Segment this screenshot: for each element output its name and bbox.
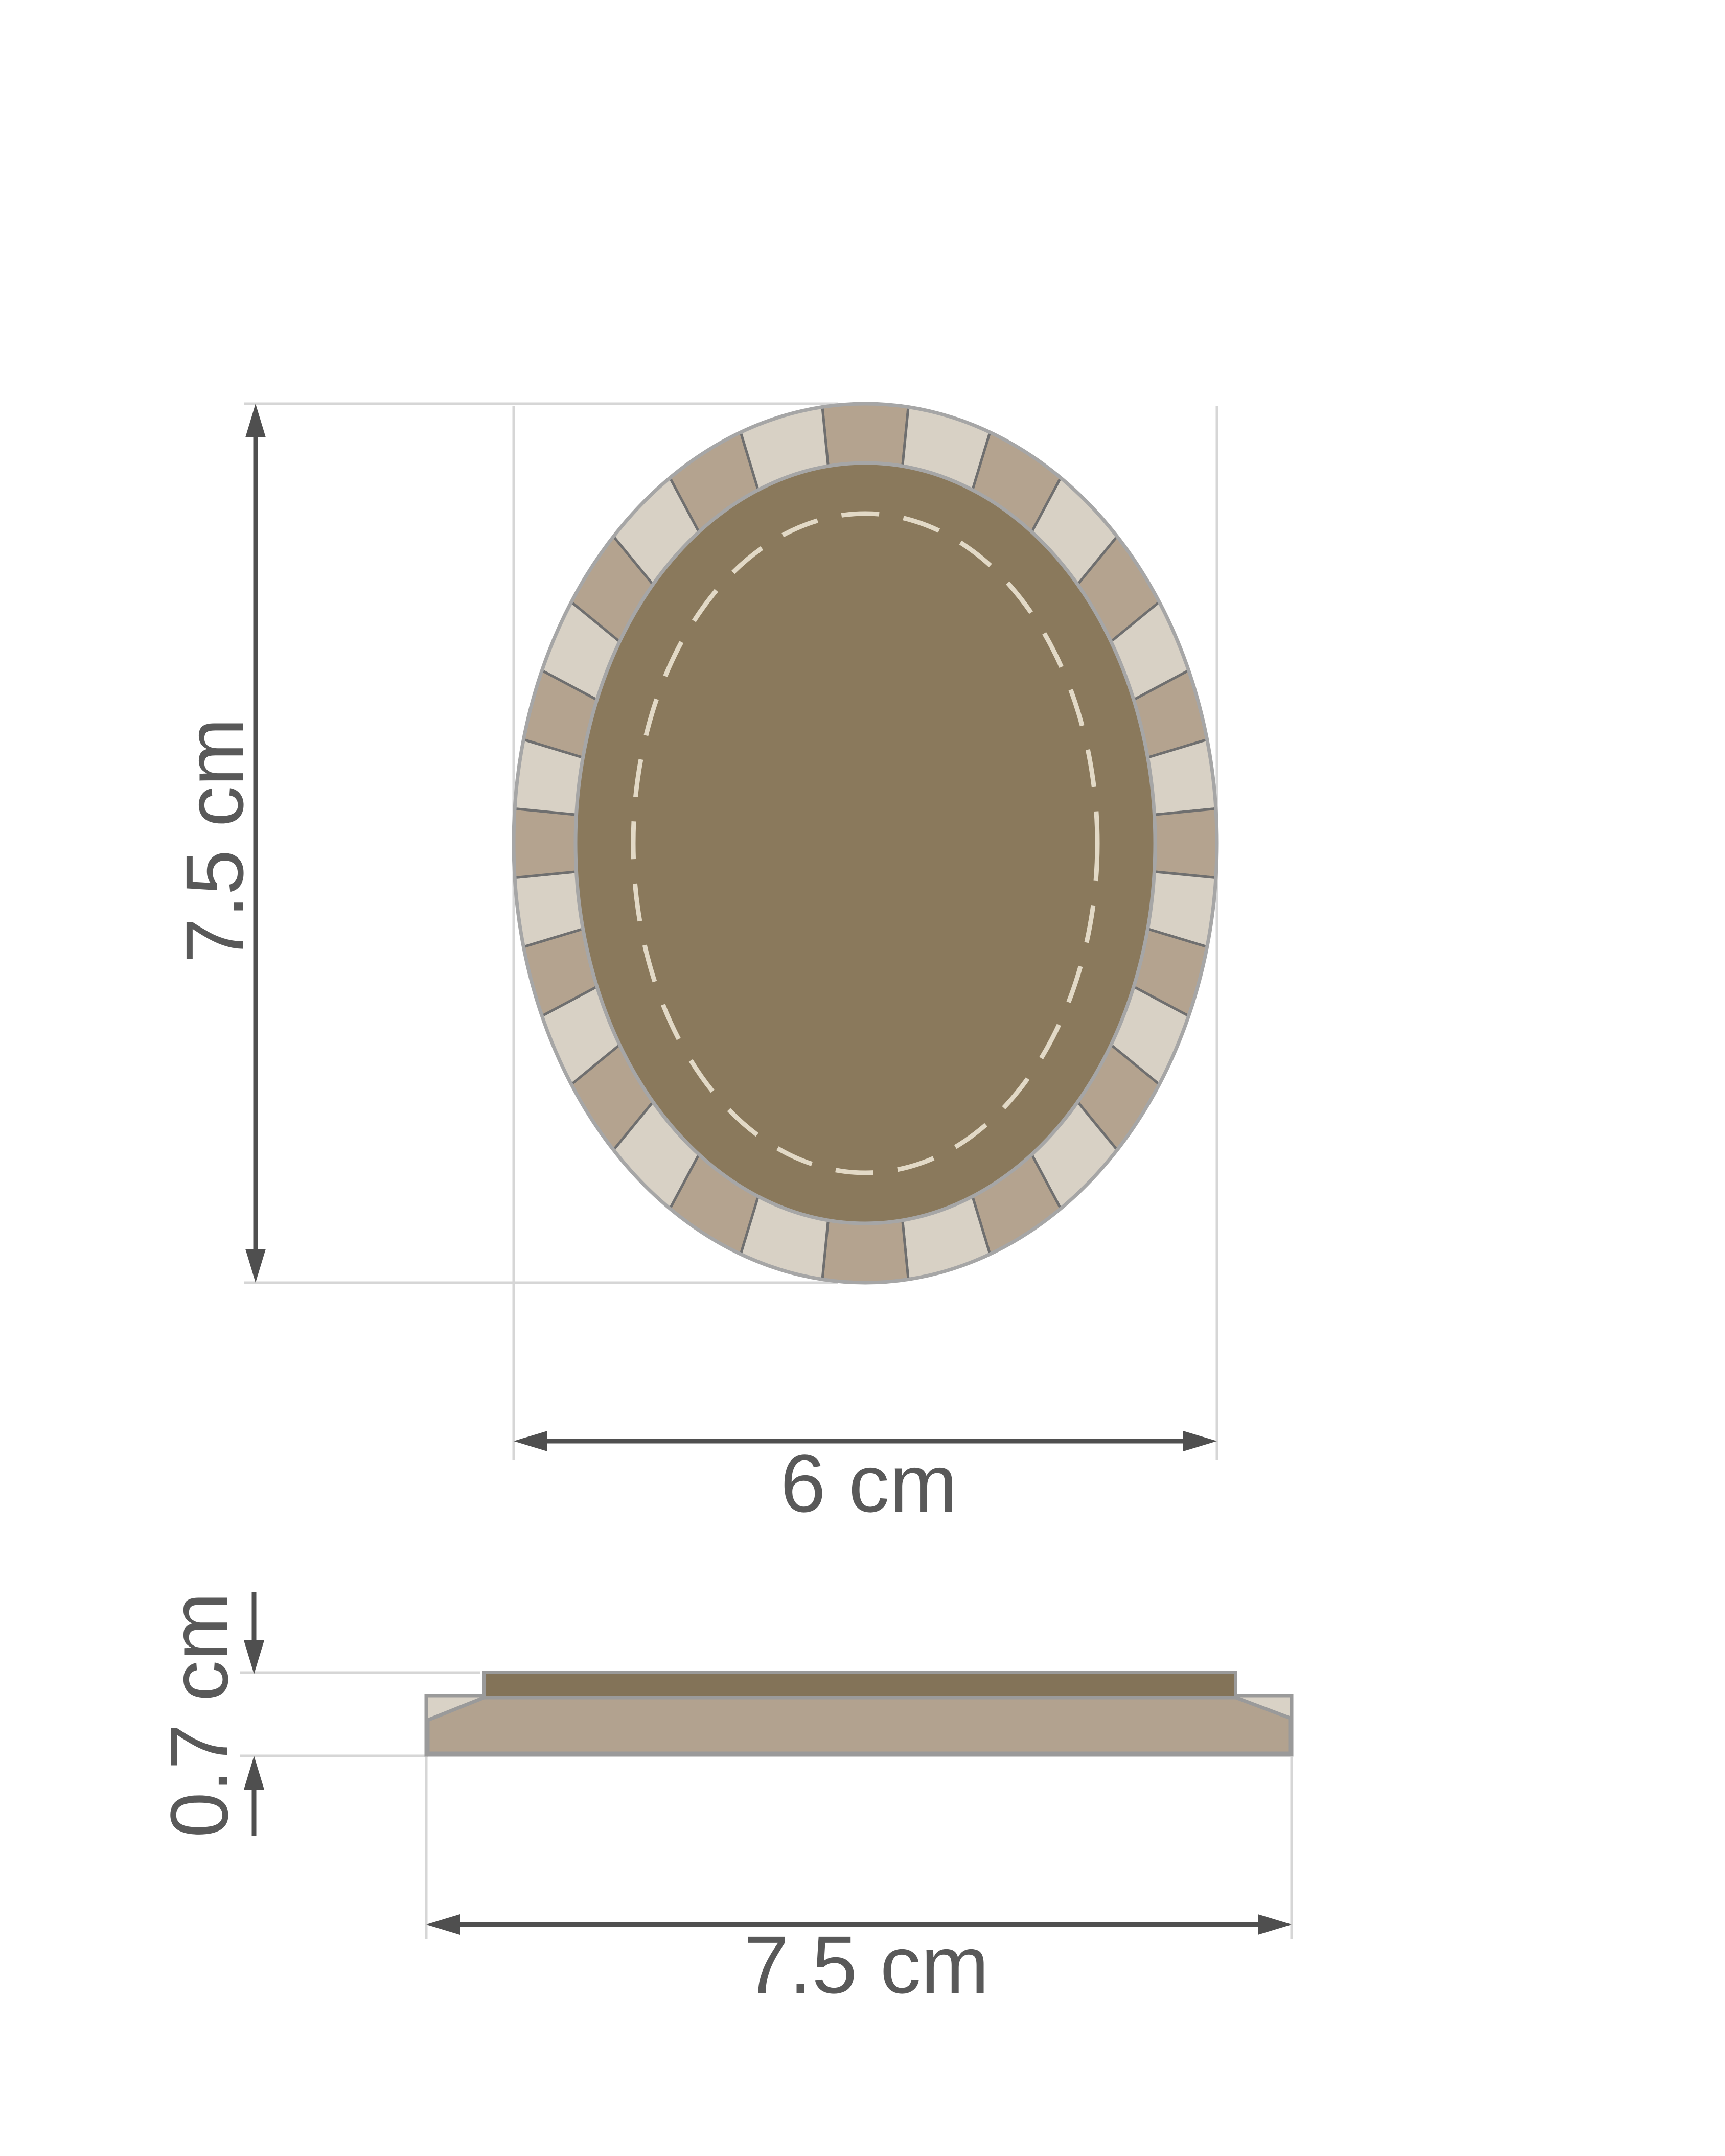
ring-segment [822, 404, 908, 466]
oval-height-label: 7.5 cm [169, 718, 260, 963]
arrowhead-up-icon [245, 404, 266, 437]
arrowhead-left2-icon [426, 1914, 460, 1935]
arrowhead-right-icon [1183, 1431, 1217, 1451]
oval-width-dimension: 6 cm [514, 1431, 1217, 1529]
ring-segment [822, 1220, 908, 1282]
oval-height-dimension: 7.5 cm [169, 404, 266, 1283]
arrowhead-right2-icon [1258, 1914, 1292, 1935]
profile-thickness-dimension: 0.7 cm [153, 1592, 264, 1838]
top-view: 7.5 cm 6 cm [169, 404, 1217, 1529]
dimension-drawing: 7.5 cm 6 cm 0.7 cm [0, 0, 1725, 2156]
side-view: 0.7 cm 7.5 cm [153, 1592, 1292, 2010]
arrowhead-up-small-icon [244, 1756, 264, 1790]
profile-thickness-label: 0.7 cm [153, 1592, 245, 1838]
ring-segment [514, 808, 576, 877]
profile-pad-strip [484, 1673, 1236, 1698]
arrowhead-left-icon [514, 1431, 547, 1451]
profile-width-label: 7.5 cm [744, 1919, 989, 2010]
profile-width-dimension: 7.5 cm [426, 1914, 1292, 2010]
ring-segment [1154, 808, 1216, 877]
pad-area [576, 463, 1155, 1223]
arrowhead-down-icon [245, 1249, 266, 1283]
oval-width-label: 6 cm [780, 1438, 958, 1529]
arrowhead-down-small-icon [244, 1640, 264, 1674]
profile-slab-layer [428, 1698, 1290, 1753]
